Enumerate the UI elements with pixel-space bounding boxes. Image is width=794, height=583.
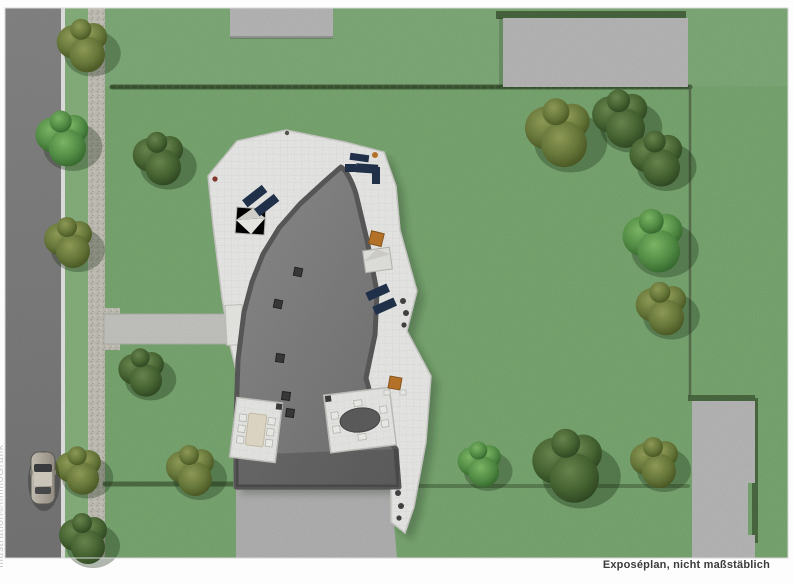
illustrator-credit: Illustration©ImmoGrafik [0, 444, 6, 568]
site-plan-illustration [0, 0, 794, 578]
site-plan-svg [0, 0, 794, 578]
plan-disclaimer: Exposéplan, nicht maßstäblich [603, 559, 770, 571]
grain-overlay [5, 8, 788, 558]
